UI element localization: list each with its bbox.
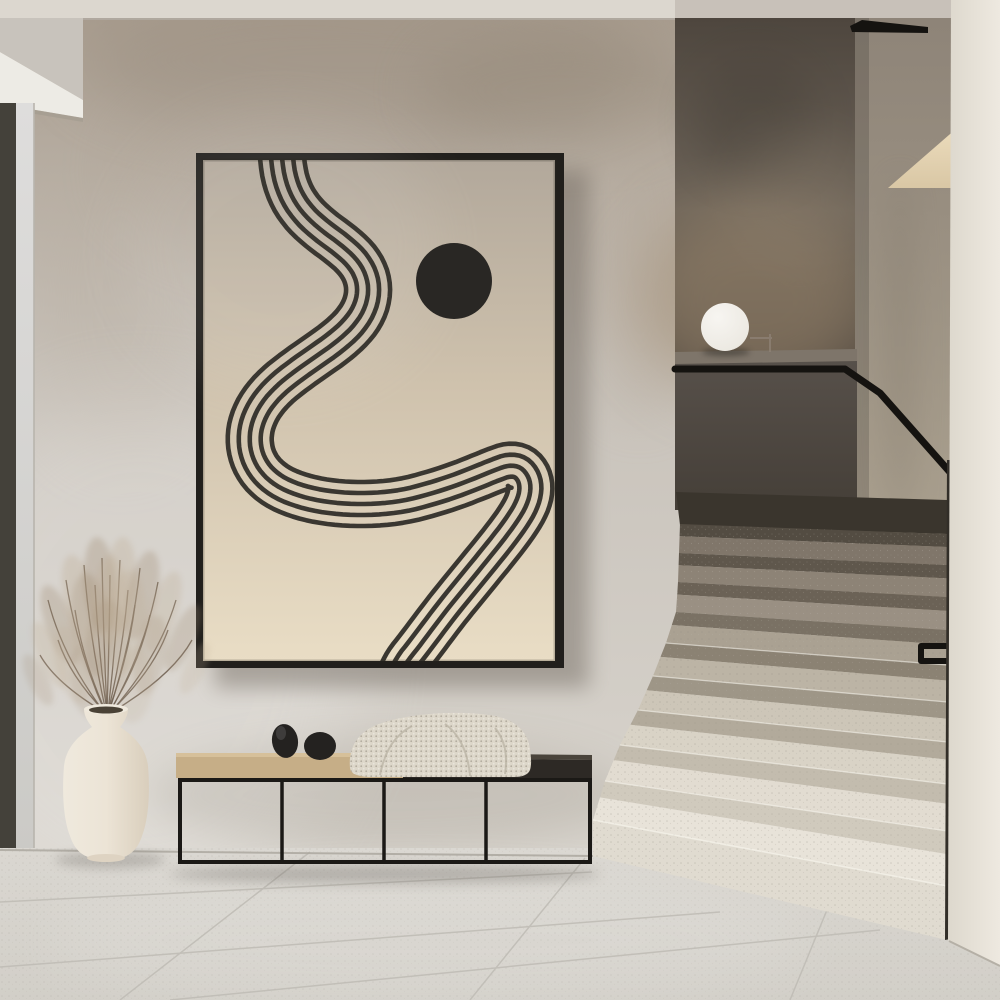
sphere-lamp bbox=[701, 303, 749, 351]
glass-panel bbox=[16, 103, 34, 853]
pillar bbox=[948, 0, 1000, 966]
vase-mouth bbox=[89, 707, 123, 714]
landing-parapet bbox=[675, 360, 857, 510]
pebble-2 bbox=[304, 732, 336, 760]
bench-floor-shadow bbox=[170, 865, 600, 883]
art-circle bbox=[416, 243, 492, 319]
grass-plume bbox=[92, 556, 128, 644]
art-sheen bbox=[120, 110, 440, 390]
interior-photo bbox=[0, 0, 1000, 1000]
vase-foot bbox=[87, 854, 125, 862]
stair-wall-smudge bbox=[730, 130, 870, 270]
glass-edge bbox=[33, 103, 35, 853]
pillar-face bbox=[948, 0, 1000, 965]
pebble-highlight bbox=[276, 726, 286, 740]
door-frame bbox=[0, 103, 16, 855]
stair-wall-streak bbox=[886, 170, 914, 530]
